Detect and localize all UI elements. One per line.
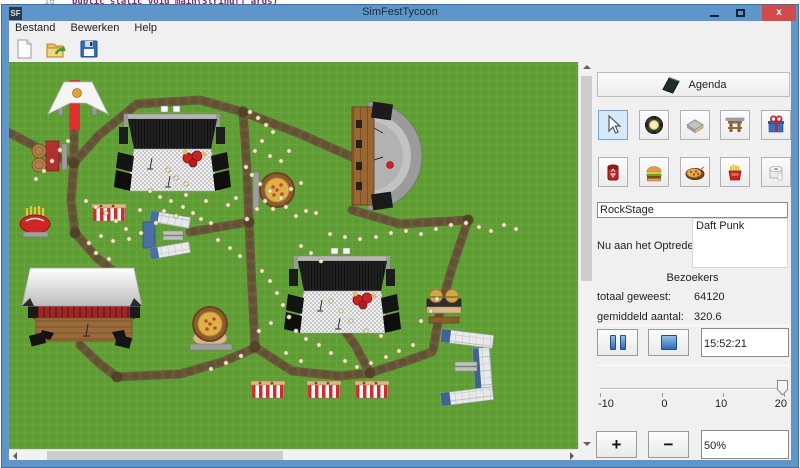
pause-button[interactable]: [597, 329, 638, 356]
tool-platform[interactable]: [680, 110, 710, 140]
tool-gift[interactable]: [761, 110, 791, 140]
gift-icon: [765, 114, 787, 136]
gate-icon: [724, 114, 746, 136]
platform-icon: [684, 114, 706, 136]
stop-icon: [661, 335, 677, 350]
zoom-in-button[interactable]: +: [596, 431, 637, 458]
menu-bewerken[interactable]: Bewerken: [64, 21, 125, 34]
maximize-button[interactable]: [728, 5, 754, 21]
tool-trash-can[interactable]: [598, 157, 628, 187]
tool-pizza[interactable]: [680, 157, 710, 187]
pizza-stand-1[interactable]: [253, 172, 294, 210]
clock-display: [701, 328, 789, 357]
minus-icon: −: [664, 440, 674, 450]
total-visitors-label: totaal geweest:: [597, 291, 671, 303]
save-button[interactable]: [78, 38, 100, 60]
tool-select-cursor[interactable]: [598, 110, 628, 140]
stop-button[interactable]: [648, 329, 689, 356]
tool-spotlight[interactable]: [639, 110, 669, 140]
toilet-paper-icon: [765, 161, 787, 183]
agenda-button[interactable]: Agenda: [597, 72, 790, 97]
cursor-icon: [602, 114, 624, 136]
tool-fries[interactable]: [720, 157, 750, 187]
spotlight-icon: [643, 114, 665, 136]
map-horizontal-scrollbar[interactable]: [9, 449, 578, 460]
striped-stand-3[interactable]: [355, 381, 389, 398]
toolbar: [9, 37, 791, 62]
new-document-button[interactable]: [13, 38, 35, 60]
bar-stand[interactable]: [32, 141, 67, 172]
tent-stage[interactable]: [22, 268, 142, 349]
scroll-down-icon[interactable]: [583, 442, 591, 446]
now-performing-listbox[interactable]: Daft Punk: [692, 218, 788, 268]
scrollbar-corner: [578, 449, 593, 460]
tool-entrance-gate[interactable]: [720, 110, 750, 140]
app-window: SF SimFestTycoon x Bestand Bewerken Help: [2, 5, 798, 467]
menubar: Bestand Bewerken Help: [9, 21, 791, 37]
new-document-icon: [13, 38, 35, 60]
speed-slider[interactable]: -1001020: [598, 380, 787, 420]
minimize-icon: [710, 15, 719, 17]
zoom-level-display: [701, 430, 789, 459]
agenda-book-icon: [661, 76, 681, 94]
slider-thumb[interactable]: [777, 380, 788, 396]
average-visitors-value: 320.6: [694, 311, 722, 323]
performer-name: Daft Punk: [696, 220, 744, 232]
save-floppy-icon: [78, 38, 100, 60]
slider-tick-labels: -1001020: [598, 398, 787, 410]
average-visitors-label: gemiddeld aantal:: [597, 311, 684, 323]
hamburger-icon: [643, 161, 665, 183]
tool-toilet-paper[interactable]: [761, 157, 791, 187]
separator: [596, 325, 789, 326]
close-button[interactable]: x: [762, 5, 796, 21]
visitors-header: Bezoekers: [594, 272, 791, 284]
total-visitors-value: 64120: [694, 291, 725, 303]
open-folder-icon: [45, 38, 67, 60]
menu-help[interactable]: Help: [128, 21, 163, 34]
side-panel: Agenda: [594, 62, 791, 459]
pause-icon: [610, 335, 616, 350]
now-performing-label: Nu aan het Optreden:: [597, 240, 703, 252]
vertical-scroll-thumb[interactable]: [581, 76, 592, 281]
stage-name-input[interactable]: [597, 202, 788, 218]
titlebar: SF SimFestTycoon x: [2, 5, 798, 21]
fries-icon: [724, 161, 746, 183]
separator: [596, 365, 789, 366]
slider-track[interactable]: [600, 388, 785, 390]
minimize-button[interactable]: [702, 5, 728, 21]
menu-bestand[interactable]: Bestand: [9, 21, 61, 34]
trash-can-icon: [602, 161, 624, 183]
scroll-right-icon[interactable]: [570, 452, 574, 460]
horizontal-scroll-thumb[interactable]: [47, 451, 283, 460]
zoom-out-button[interactable]: −: [648, 431, 689, 458]
pizza-icon: [684, 161, 706, 183]
striped-stand-2[interactable]: [307, 381, 341, 398]
open-file-button[interactable]: [45, 38, 67, 60]
map-vertical-scrollbar[interactable]: [578, 62, 593, 449]
agenda-label: Agenda: [689, 79, 727, 91]
map-viewport[interactable]: [9, 62, 578, 449]
scroll-left-icon[interactable]: [13, 452, 17, 460]
slider-tick-marks: [600, 393, 785, 397]
scroll-up-icon[interactable]: [583, 65, 591, 69]
striped-stand-1[interactable]: [251, 381, 285, 398]
tool-hamburger[interactable]: [639, 157, 669, 187]
close-icon: x: [762, 5, 796, 21]
maximize-icon: [736, 9, 745, 17]
window-title: SimFestTycoon: [2, 6, 798, 18]
plus-icon: +: [612, 440, 622, 450]
